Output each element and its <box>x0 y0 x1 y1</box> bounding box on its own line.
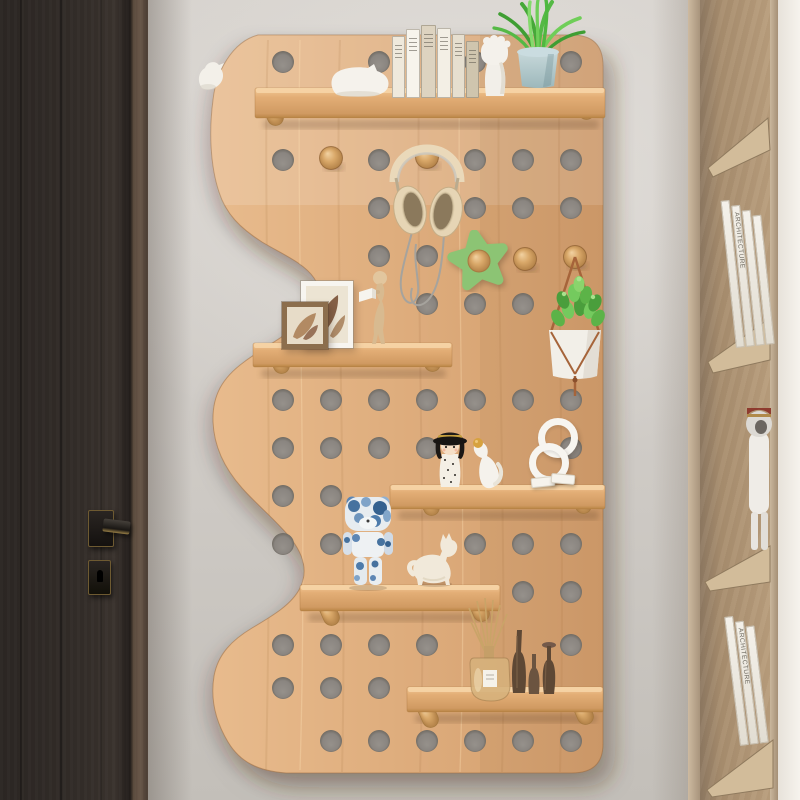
peg-hole <box>368 389 390 411</box>
wood-peg <box>514 248 537 271</box>
reading-man-figurine <box>355 268 397 348</box>
peg-hole <box>464 533 486 555</box>
peg-hole <box>320 634 342 656</box>
peg-hole <box>512 389 534 411</box>
edge-bird-figurine <box>196 58 226 92</box>
wooden-vases <box>512 630 556 694</box>
doll-girl-figurine <box>431 426 469 492</box>
peg-hole <box>368 437 390 459</box>
succulent-plant <box>548 276 607 329</box>
hanging-planter <box>538 248 612 402</box>
peg-hole <box>560 533 582 555</box>
squirrel-figurine <box>471 436 505 492</box>
book-spine <box>421 25 436 98</box>
peg-hole <box>320 677 342 699</box>
peg-hole <box>560 634 582 656</box>
peg-hole <box>416 389 438 411</box>
peg-hole <box>512 293 534 315</box>
shelf-shadow <box>261 369 446 378</box>
book-spine <box>392 36 405 98</box>
grass-plant <box>488 0 588 92</box>
peg-hole <box>512 197 534 219</box>
peg-hole <box>464 389 486 411</box>
peg-hole <box>320 533 342 555</box>
peg-hole <box>272 149 294 171</box>
peg-hole <box>512 149 534 171</box>
peg-hole <box>320 389 342 411</box>
pegboard <box>0 0 800 800</box>
shelf-shadow <box>415 714 597 723</box>
peg-hole <box>512 730 534 752</box>
peg-hole <box>320 485 342 507</box>
peg-hole <box>416 730 438 752</box>
book-spine <box>406 29 420 98</box>
reed-diffuser-and-vases <box>455 596 563 708</box>
peg-hole <box>368 730 390 752</box>
peg-hole <box>560 730 582 752</box>
peg-hole <box>512 533 534 555</box>
peg-hole <box>320 437 342 459</box>
book-spine <box>452 34 465 98</box>
bearbrick-figure <box>342 494 394 592</box>
peg-hole <box>272 677 294 699</box>
scene-product-photo: ARCHITECTUREARCHITECTURE <box>0 0 800 800</box>
peg-hole <box>272 389 294 411</box>
peg-hole <box>272 634 294 656</box>
peg-hole <box>464 730 486 752</box>
book-stack <box>392 24 480 98</box>
peg-hole <box>560 197 582 219</box>
peg-hole <box>368 677 390 699</box>
peg-hole <box>560 581 582 603</box>
picture-frame-brown <box>282 302 328 349</box>
pig-bookend <box>328 60 394 98</box>
wood-peg <box>320 147 343 170</box>
star-hook <box>446 230 512 292</box>
peg-hole <box>272 485 294 507</box>
peg-hole <box>272 533 294 555</box>
book-spine <box>437 28 451 98</box>
cat-figurine <box>405 531 459 589</box>
white-block <box>551 473 576 485</box>
peg-hole <box>272 437 294 459</box>
peg-hole <box>416 634 438 656</box>
peg-hole <box>368 634 390 656</box>
peg-hole <box>560 149 582 171</box>
peg-hole <box>320 730 342 752</box>
peg-hole <box>272 51 294 73</box>
